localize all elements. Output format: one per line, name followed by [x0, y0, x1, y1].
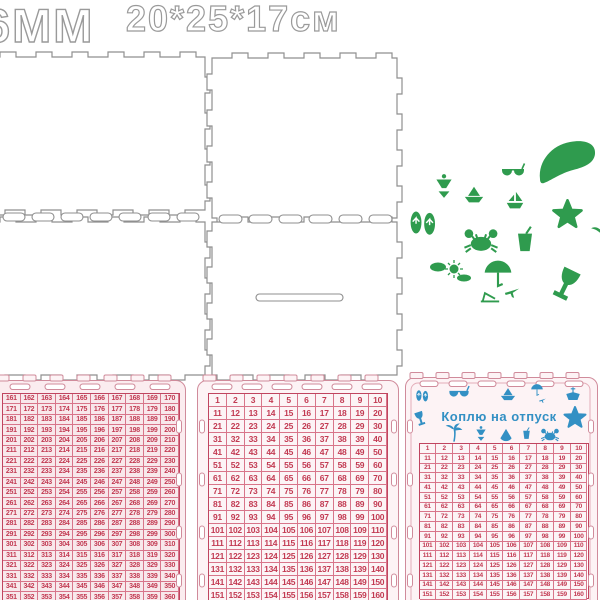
grid-cell: 60: [369, 459, 387, 472]
grid-cell: 231: [3, 467, 21, 477]
grid-cell: 146: [503, 581, 520, 591]
grid-cell: 6: [298, 394, 316, 407]
grid-cell: 309: [144, 540, 162, 550]
grid-cell: 180: [161, 404, 179, 414]
grid-cell: 115: [280, 537, 298, 550]
grid-cell: 214: [56, 446, 74, 456]
grid-cell: 249: [144, 478, 162, 488]
grid-cell: 166: [91, 394, 109, 404]
grid-cell: 216: [91, 446, 109, 456]
grid-cell: 28: [334, 420, 352, 433]
lounger-icon: [481, 293, 499, 301]
grid-cell: 354: [56, 592, 74, 600]
grid-cell: 290: [161, 519, 179, 529]
grid-cell: 69: [351, 472, 369, 485]
grid-cell: 45: [280, 446, 298, 459]
grid-cell: 117: [520, 551, 537, 561]
grid-cell: 164: [56, 394, 74, 404]
grid-cell: 313: [38, 551, 56, 561]
grid-cell: 284: [56, 519, 74, 529]
grid-cell: 360: [161, 592, 179, 600]
grid-cell: 118: [334, 537, 352, 550]
grid-cell: 297: [109, 530, 127, 540]
joint-slot: [119, 213, 141, 221]
grid-cell: 18: [537, 454, 554, 464]
grid-cell: 209: [144, 436, 162, 446]
grid-cell: 79: [554, 512, 571, 522]
grid-cell: 215: [73, 446, 91, 456]
grid-cell: 86: [503, 522, 520, 532]
grid-cell: 319: [144, 551, 162, 561]
grid-cell: 110: [369, 524, 387, 537]
grid-cell: 92: [227, 511, 245, 524]
grid-cell: 351: [3, 592, 21, 600]
grid-cell: 122: [436, 561, 453, 571]
grid-cell: 264: [56, 498, 74, 508]
grid-cell: 190: [161, 415, 179, 425]
sunglasses-icon: [502, 164, 525, 176]
joint-slot: [3, 213, 25, 221]
grid-cell: 145: [487, 581, 504, 591]
grid-cell: 133: [453, 571, 470, 581]
grid-cell: 72: [436, 512, 453, 522]
grid-cell: 11: [420, 454, 437, 464]
grid-cell: 234: [56, 467, 74, 477]
joint-slot: [148, 213, 170, 221]
joint-slot: [309, 215, 332, 223]
grid-cell: 277: [109, 509, 127, 519]
grid-cell: 255: [73, 488, 91, 498]
grid-cell: 99: [351, 511, 369, 524]
grid-cell: 271: [3, 509, 21, 519]
grid-cell: 91: [209, 511, 227, 524]
grid-cell: 91: [420, 532, 437, 542]
grid-cell: 68: [537, 503, 554, 513]
grid-cell: 48: [537, 483, 554, 493]
grid-cell: 346: [91, 582, 109, 592]
grid-cell: 287: [109, 519, 127, 529]
grid-cell: 149: [351, 576, 369, 589]
grid-cell: 59: [351, 459, 369, 472]
joint-slot: [369, 215, 392, 223]
grid-cell: 160: [571, 590, 588, 600]
grid-cell: 229: [144, 457, 162, 467]
grid-cell: 276: [91, 509, 109, 519]
grid-cell: 140: [571, 571, 588, 581]
grid-cell: 179: [144, 404, 162, 414]
grid-cell: 14: [470, 454, 487, 464]
grid-cell: 13: [245, 407, 263, 420]
grid-cell: 111: [209, 537, 227, 550]
grid-cell: 7: [316, 394, 334, 407]
grid-cell: 94: [470, 532, 487, 542]
flip-flops-icon: [411, 212, 435, 235]
grid-cell: 116: [298, 537, 316, 550]
grid-cell: 160: [369, 589, 387, 600]
grid-cell: 102: [436, 542, 453, 552]
grid-cell: 211: [3, 446, 21, 456]
grid-cell: 155: [487, 590, 504, 600]
grid-cell: 96: [503, 532, 520, 542]
grid-cell: 182: [21, 415, 39, 425]
grid-cell: 245: [73, 478, 91, 488]
grid-cell: 331: [3, 571, 21, 581]
grid-cell: 89: [351, 498, 369, 511]
joint-slot: [177, 213, 199, 221]
grid-cell: 218: [126, 446, 144, 456]
grid-cell: 145: [280, 576, 298, 589]
grid-cell: 193: [38, 425, 56, 435]
grid-cell: 80: [369, 485, 387, 498]
top-right-panel: [207, 53, 402, 223]
grid-cell: 285: [73, 519, 91, 529]
grid-cell: 205: [73, 436, 91, 446]
joint-slot: [339, 215, 362, 223]
grid-cell: 343: [38, 582, 56, 592]
grid-cell: 235: [73, 467, 91, 477]
grid-cell: 232: [21, 467, 39, 477]
grid-cell: 68: [334, 472, 352, 485]
grid-cell: 83: [453, 522, 470, 532]
grid-cell: 320: [161, 551, 179, 561]
grid-cell: 34: [470, 473, 487, 483]
grid-cell: 282: [21, 519, 39, 529]
grid-cell: 66: [503, 503, 520, 513]
grid-cell: 152: [227, 589, 245, 600]
grid-cell: 42: [436, 483, 453, 493]
grid-cell: 65: [487, 503, 504, 513]
grid-cell: 118: [537, 551, 554, 561]
grid-cell: 119: [351, 537, 369, 550]
grid-cell: 233: [38, 467, 56, 477]
grid-cell: 98: [537, 532, 554, 542]
grid-cell: 252: [21, 488, 39, 498]
grid-cell: 174: [56, 404, 74, 414]
grid-cell: 358: [126, 592, 144, 600]
grid-cell: 250: [161, 478, 179, 488]
grid-cell: 9: [351, 394, 369, 407]
grid-cell: 312: [21, 551, 39, 561]
grid-cell: 281: [3, 519, 21, 529]
savings-plaque-161-360: 1611621631641651661671681691701711721731…: [0, 380, 186, 600]
grid-cell: 48: [334, 446, 352, 459]
grid-cell: 253: [38, 488, 56, 498]
grid-cell: 74: [262, 485, 280, 498]
grid-cell: 176: [91, 404, 109, 414]
grid-cell: 32: [436, 473, 453, 483]
grid-cell: 53: [453, 493, 470, 503]
grid-cell: 186: [91, 415, 109, 425]
grid-cell: 31: [209, 433, 227, 446]
grid-cell: 317: [109, 551, 127, 561]
grid-cell: 248: [126, 478, 144, 488]
grid-cell: 103: [453, 542, 470, 552]
grid-cell: 78: [537, 512, 554, 522]
grid-cell: 263: [38, 498, 56, 508]
grid-cell: 82: [436, 522, 453, 532]
grid-cell: 322: [21, 561, 39, 571]
grid-cell: 97: [316, 511, 334, 524]
grid-cell: 202: [21, 436, 39, 446]
grid-cell: 159: [554, 590, 571, 600]
grid-cell: 21: [420, 464, 437, 474]
grid-cell: 261: [3, 498, 21, 508]
material-thickness-label: 6MM: [0, 0, 94, 52]
bikini-icon: [436, 174, 451, 198]
grid-cell: 81: [420, 522, 437, 532]
grid-cell: 104: [262, 524, 280, 537]
grid-cell: 137: [520, 571, 537, 581]
grid-cell: 106: [503, 542, 520, 552]
front-panel: [0, 217, 210, 380]
grid-cell: 18: [334, 407, 352, 420]
grid-cell: 37: [316, 433, 334, 446]
grid-cell: 71: [209, 485, 227, 498]
grid-cell: 29: [554, 464, 571, 474]
grid-cell: 141: [209, 576, 227, 589]
grid-cell: 124: [470, 561, 487, 571]
grid-cell: 150: [369, 576, 387, 589]
grid-cell: 4: [470, 444, 487, 454]
grid-cell: 50: [571, 483, 588, 493]
grid-cell: 152: [436, 590, 453, 600]
grid-cell: 340: [161, 571, 179, 581]
grid-cell: 92: [436, 532, 453, 542]
grid-cell: 36: [503, 473, 520, 483]
grid-cell: 161: [3, 394, 21, 404]
grid-cell: 265: [73, 498, 91, 508]
cocktail-glass-icon: [551, 267, 580, 302]
grid-cell: 52: [436, 493, 453, 503]
grid-cell: 19: [351, 407, 369, 420]
grid-cell: 5: [487, 444, 504, 454]
grid-cell: 77: [520, 512, 537, 522]
grid-cell: 143: [453, 581, 470, 591]
grid-cell: 154: [470, 590, 487, 600]
grid-cell: 104: [470, 542, 487, 552]
joint-slot: [32, 213, 54, 221]
grid-cell: 189: [144, 415, 162, 425]
grid-cell: 40: [571, 473, 588, 483]
grid-cell: 268: [126, 498, 144, 508]
grid-cell: 62: [227, 472, 245, 485]
grid-cell: 147: [520, 581, 537, 591]
grid-cell: 227: [109, 457, 127, 467]
grid-cell: 138: [537, 571, 554, 581]
grid-cell: 153: [245, 589, 263, 600]
grid-cell: 342: [21, 582, 39, 592]
grid-cell: 40: [369, 433, 387, 446]
grid-cell: 32: [227, 433, 245, 446]
grid-cell: 126: [298, 550, 316, 563]
grid-cell: 142: [227, 576, 245, 589]
grid-cell: 123: [245, 550, 263, 563]
grid-cell: 137: [316, 563, 334, 576]
grid-cell: 314: [56, 551, 74, 561]
grid-cell: 210: [161, 436, 179, 446]
grid-cell: 31: [420, 473, 437, 483]
grid-cell: 236: [91, 467, 109, 477]
grid-cell: 88: [537, 522, 554, 532]
grid-cell: 121: [209, 550, 227, 563]
grid-cell: 43: [245, 446, 263, 459]
grid-cell: 1: [420, 444, 437, 454]
grid-cell: 222: [21, 457, 39, 467]
grid-cell: 3: [453, 444, 470, 454]
grid-cell: 359: [144, 592, 162, 600]
grid-cell: 128: [334, 550, 352, 563]
grid-cell: 116: [503, 551, 520, 561]
grid-cell: 308: [126, 540, 144, 550]
grid-cell: 119: [554, 551, 571, 561]
grid-cell: 30: [571, 464, 588, 474]
grid-cell: 198: [126, 425, 144, 435]
grid-cell: 80: [571, 512, 588, 522]
grid-cell: 16: [503, 454, 520, 464]
grid-cell: 51: [420, 493, 437, 503]
joint-slot: [90, 213, 112, 221]
grid-cell: 326: [91, 561, 109, 571]
grid-cell: 143: [245, 576, 263, 589]
grid-cell: 47: [520, 483, 537, 493]
grid-cell: 244: [56, 478, 74, 488]
grid-cell: 114: [262, 537, 280, 550]
grid-cell: 35: [487, 473, 504, 483]
grid-cell: 35: [280, 433, 298, 446]
grid-cell: 61: [420, 503, 437, 513]
grid-cell: 131: [420, 571, 437, 581]
grid-cell: 51: [209, 459, 227, 472]
grid-cell: 151: [209, 589, 227, 600]
grid-cell: 106: [298, 524, 316, 537]
grid-cell: 177: [109, 404, 127, 414]
grid-cell: 2: [227, 394, 245, 407]
swim-fin-icon: [540, 141, 595, 183]
grid-cell: 344: [56, 582, 74, 592]
grid-cell: 22: [227, 420, 245, 433]
grid-cell: 50: [369, 446, 387, 459]
joint-slot: [219, 215, 242, 223]
grid-cell: 230: [161, 457, 179, 467]
grid-cell: 148: [537, 581, 554, 591]
grid-cell: 107: [316, 524, 334, 537]
grid-cell: 167: [109, 394, 127, 404]
grid-cell: 178: [126, 404, 144, 414]
grid-cell: 327: [109, 561, 127, 571]
grid-cell: 20: [571, 454, 588, 464]
grid-cell: 337: [109, 571, 127, 581]
grid-cell: 1: [209, 394, 227, 407]
beach-umbrella-icon: [485, 261, 512, 286]
grid-cell: 39: [351, 433, 369, 446]
grid-cell: 257: [109, 488, 127, 498]
grid-cell: 117: [316, 537, 334, 550]
grid-cell: 77: [316, 485, 334, 498]
grid-cell: 258: [126, 488, 144, 498]
number-grid-1-160: 1234567891011121314151617181920212223242…: [208, 393, 388, 600]
grid-cell: 283: [38, 519, 56, 529]
grid-cell: 127: [520, 561, 537, 571]
grid-cell: 23: [245, 420, 263, 433]
grid-cell: 353: [38, 592, 56, 600]
grid-cell: 131: [209, 563, 227, 576]
grid-cell: 336: [91, 571, 109, 581]
grid-cell: 259: [144, 488, 162, 498]
grid-cell: 338: [126, 571, 144, 581]
grid-cell: 124: [262, 550, 280, 563]
grid-cell: 84: [470, 522, 487, 532]
grid-cell: 279: [144, 509, 162, 519]
grid-cell: 330: [161, 561, 179, 571]
grid-cell: 291: [3, 530, 21, 540]
grid-cell: 148: [334, 576, 352, 589]
grid-cell: 157: [316, 589, 334, 600]
grid-cell: 139: [554, 571, 571, 581]
grid-cell: 293: [38, 530, 56, 540]
grid-cell: 105: [280, 524, 298, 537]
grid-cell: 100: [571, 532, 588, 542]
grid-cell: 115: [487, 551, 504, 561]
grid-cell: 292: [21, 530, 39, 540]
grid-cell: 246: [91, 478, 109, 488]
grid-cell: 254: [56, 488, 74, 498]
grid-cell: 270: [161, 498, 179, 508]
grid-cell: 302: [21, 540, 39, 550]
airplane-icon: [505, 289, 519, 298]
grid-cell: 335: [73, 571, 91, 581]
grid-cell: 185: [73, 415, 91, 425]
grid-cell: 356: [91, 592, 109, 600]
green-decor-icons: [411, 141, 600, 301]
grid-cell: 6: [503, 444, 520, 454]
grid-cell: 94: [262, 511, 280, 524]
grid-cell: 207: [109, 436, 127, 446]
number-grid-vacation: 1234567891011121314151617181920212223242…: [419, 443, 589, 599]
grid-cell: 225: [73, 457, 91, 467]
grid-cell: 99: [554, 532, 571, 542]
grid-cell: 260: [161, 488, 179, 498]
grid-cell: 42: [227, 446, 245, 459]
grid-cell: 147: [316, 576, 334, 589]
grid-cell: 329: [144, 561, 162, 571]
grid-cell: 191: [3, 425, 21, 435]
grid-cell: 241: [3, 478, 21, 488]
grid-cell: 146: [298, 576, 316, 589]
grid-cell: 286: [91, 519, 109, 529]
grid-cell: 75: [280, 485, 298, 498]
grid-cell: 199: [144, 425, 162, 435]
grid-cell: 49: [351, 446, 369, 459]
grid-cell: 65: [280, 472, 298, 485]
grid-cell: 41: [420, 483, 437, 493]
grid-cell: 70: [369, 472, 387, 485]
grid-cell: 266: [91, 498, 109, 508]
palm-tree-partial-icon: [591, 225, 600, 249]
grid-cell: 79: [351, 485, 369, 498]
box-dimensions-label: 20*25*17см: [126, 0, 341, 39]
grid-cell: 307: [109, 540, 127, 550]
grid-cell: 272: [21, 509, 39, 519]
grid-cell: 54: [262, 459, 280, 472]
grid-cell: 4: [262, 394, 280, 407]
grid-cell: 21: [209, 420, 227, 433]
grid-cell: 247: [109, 478, 127, 488]
grid-cell: 71: [420, 512, 437, 522]
grid-cell: 125: [280, 550, 298, 563]
paper-boat-icon: [465, 187, 483, 203]
grid-cell: 173: [38, 404, 56, 414]
grid-cell: 46: [298, 446, 316, 459]
